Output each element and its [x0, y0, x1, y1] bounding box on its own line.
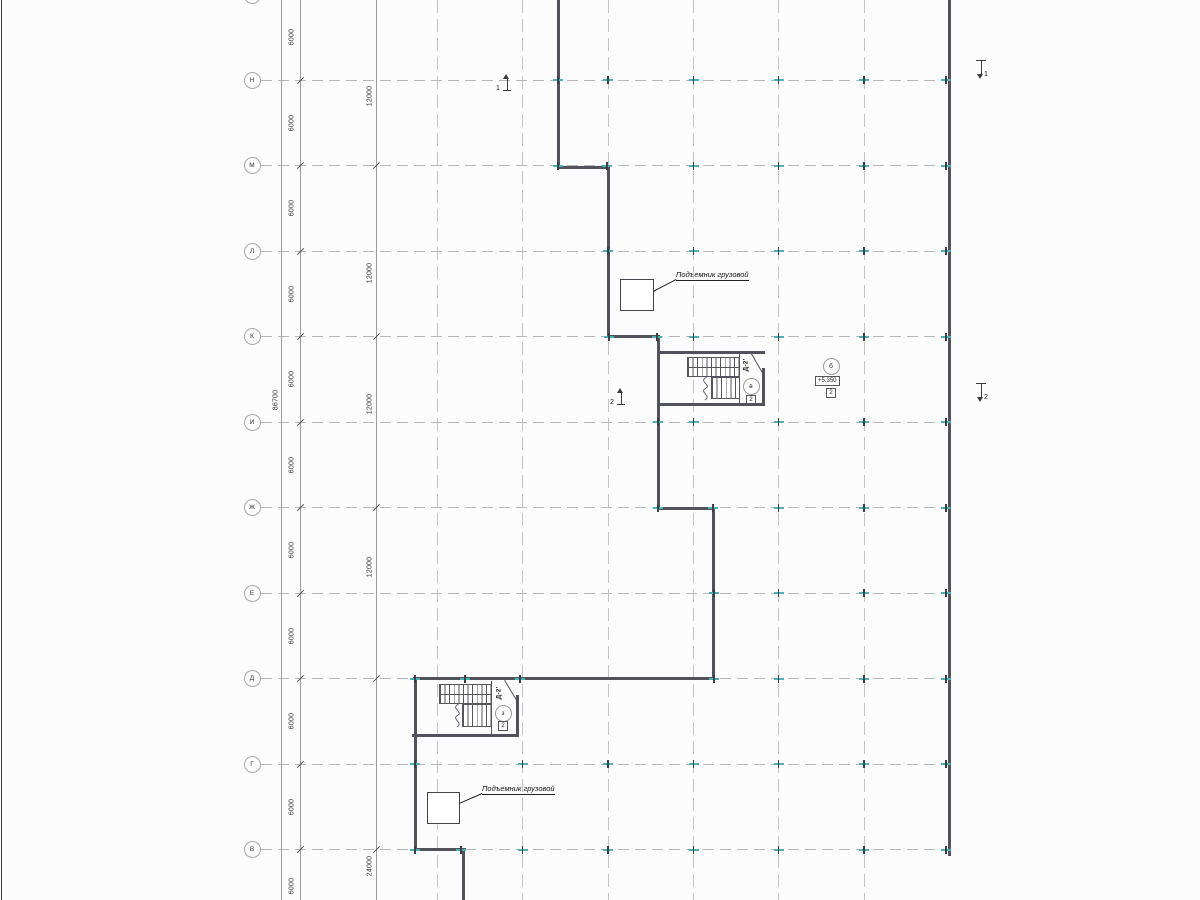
grid-tick: [863, 846, 865, 854]
grid-tick: [464, 675, 466, 683]
dim-label: 6000: [289, 29, 296, 45]
grid-tick: [693, 76, 695, 84]
grid-tick: [414, 846, 416, 854]
grid-tick: [607, 760, 609, 768]
grid-tick: [778, 589, 780, 597]
axis-circle: И: [244, 414, 261, 431]
grid-tick: [414, 675, 416, 683]
dim-label: 6000: [289, 200, 296, 216]
dim-label: 12000: [367, 86, 374, 106]
axis-label: К: [250, 333, 254, 340]
section-mark-part: [981, 384, 982, 397]
grid-tick: [945, 333, 947, 341]
dim-label: 6000: [289, 457, 296, 473]
dim-label: 6000: [289, 713, 296, 729]
grid-tick: [607, 846, 609, 854]
lift-label: Подъемник грузовой: [482, 784, 555, 795]
door-mark-circle: з: [495, 705, 512, 722]
stair-landing-line: [439, 694, 492, 695]
axis-label: Л: [250, 248, 254, 255]
section-arrow-icon: [503, 74, 509, 79]
grid-tick: [863, 589, 865, 597]
grid-tick: [522, 760, 524, 768]
section-number: 2: [610, 399, 614, 406]
grid-tick: [945, 76, 947, 84]
elevation-mark: +5.350: [815, 376, 840, 386]
section-arrow-icon: [977, 74, 983, 79]
grid-tick: [863, 504, 865, 512]
grid-row-line: [261, 593, 948, 594]
axis-circle: В: [244, 841, 261, 858]
grid-tick: [945, 846, 947, 854]
dim-line-overall: [281, 0, 282, 900]
section-mark-part: [617, 404, 625, 405]
grid-tick: [778, 333, 780, 341]
grid-tick: [607, 76, 609, 84]
grid-tick: [607, 247, 609, 255]
stair-landing-line: [687, 367, 740, 368]
dim-label: 6000: [289, 115, 296, 131]
wall-segment: [948, 0, 951, 856]
grid-tick: [519, 675, 521, 683]
section-arrow-icon: [977, 397, 983, 402]
section-mark-part: [976, 60, 986, 61]
grid-tick: [657, 504, 659, 512]
door-leaf-line: [504, 680, 517, 700]
section-mark-part: [503, 90, 511, 91]
sheet-edge-line: [1, 0, 2, 900]
leader-line: [653, 279, 677, 292]
grid-tick: [863, 418, 865, 426]
section-mark-part: [976, 383, 986, 384]
grid-tick: [778, 504, 780, 512]
door-leaf-line: [750, 352, 763, 373]
dim-label: 6000: [289, 286, 296, 302]
section-mark: 2: [611, 388, 631, 416]
floor-mark-box: 2: [498, 721, 508, 731]
wall-segment: [413, 677, 715, 680]
wall-segment: [657, 507, 715, 510]
axis-circle: М: [244, 157, 261, 174]
axis-label: И: [250, 419, 255, 426]
axis-label: М: [249, 162, 254, 169]
floor-mark-box: 2: [826, 388, 836, 398]
grid-tick: [557, 162, 559, 170]
door-mark-circle: в: [743, 378, 760, 395]
grid-tick: [863, 247, 865, 255]
grid-tick: [522, 846, 524, 854]
axis-circle: Д: [244, 670, 261, 687]
lift-label: Подъемник грузовой: [676, 270, 749, 281]
axis-circle: К: [244, 328, 261, 345]
axis-mark-circle: б: [823, 358, 840, 375]
dim-label: 24000: [367, 856, 374, 876]
grid-tick: [778, 162, 780, 170]
wall-segment: [557, 0, 560, 169]
floor-plan-canvas: 86700 Подъемник грузовой Подъемник грузо…: [0, 0, 1200, 900]
grid-tick: [778, 675, 780, 683]
dim-overall-label: 86700: [273, 390, 280, 410]
freight-lift-box: [427, 792, 460, 824]
axis-label: В: [250, 846, 254, 853]
axis-circle: Ж: [244, 499, 261, 516]
stair-flight: [462, 704, 492, 727]
grid-tick: [608, 333, 610, 341]
stair-break-line: [700, 377, 711, 400]
axis-label: Е: [250, 590, 254, 597]
axis-circle: Г: [244, 756, 261, 773]
stairwell-wall: [762, 368, 765, 405]
grid-tick: [693, 846, 695, 854]
section-number: 1: [496, 85, 500, 92]
stair-tag: Д-2': [743, 359, 750, 372]
stairwell-wall: [657, 351, 765, 354]
axis-circle: Н: [244, 72, 261, 89]
grid-tick: [945, 162, 947, 170]
grid-tick: [778, 76, 780, 84]
stairwell-wall: [657, 403, 765, 406]
grid-tick: [778, 418, 780, 426]
grid-tick: [557, 76, 559, 84]
axis-label: Д: [250, 675, 254, 682]
wall-segment: [462, 851, 465, 900]
grid-tick: [712, 504, 714, 512]
grid-tick: [863, 675, 865, 683]
dim-label: 12000: [367, 263, 374, 283]
section-mark-part: [981, 61, 982, 74]
axis-label: Г: [250, 761, 254, 768]
stair-break-line: [452, 704, 463, 727]
grid-tick: [778, 760, 780, 768]
stairwell-wall: [412, 734, 519, 737]
axis-circle: Л: [244, 243, 261, 260]
grid-tick: [945, 589, 947, 597]
grid-tick: [693, 162, 695, 170]
section-mark: 1: [497, 74, 517, 102]
grid-tick: [863, 333, 865, 341]
grid-row-line: [261, 507, 948, 508]
grid-tick: [945, 760, 947, 768]
dim-label: 6000: [289, 799, 296, 815]
grid-tick: [460, 846, 462, 854]
grid-tick: [945, 418, 947, 426]
grid-tick: [863, 760, 865, 768]
axis-circle: Е: [244, 585, 261, 602]
stairwell-wall: [516, 695, 519, 736]
section-mark: 2: [971, 380, 991, 408]
stair-flight: [711, 377, 740, 399]
section-arrow-icon: [617, 388, 623, 393]
dim-label: 12000: [367, 557, 374, 577]
dim-label: 6000: [289, 878, 296, 894]
grid-tick: [863, 162, 865, 170]
leader-line: [459, 793, 482, 804]
axis-label: Ж: [249, 504, 255, 511]
grid-tick: [656, 333, 658, 341]
dim-label: 6000: [289, 371, 296, 387]
grid-tick: [657, 418, 659, 426]
grid-tick: [693, 760, 695, 768]
grid-column-line: [437, 0, 438, 900]
grid-tick: [945, 675, 947, 683]
grid-tick: [693, 333, 695, 341]
grid-tick: [778, 846, 780, 854]
stair-tag: Д-2': [496, 687, 503, 700]
dim-label: 6000: [289, 628, 296, 644]
dim-label: 12000: [367, 394, 374, 414]
grid-tick: [693, 247, 695, 255]
grid-tick: [414, 760, 416, 768]
axis-label: Н: [250, 77, 255, 84]
grid-tick: [863, 76, 865, 84]
grid-tick: [778, 247, 780, 255]
grid-tick: [713, 675, 715, 683]
dim-line-12000: [376, 0, 377, 900]
grid-row-line: [261, 422, 948, 423]
dim-label: 6000: [289, 542, 296, 558]
grid-tick: [606, 162, 608, 170]
grid-tick: [945, 247, 947, 255]
axis-circle-partial: [244, 0, 261, 4]
grid-tick: [693, 418, 695, 426]
grid-tick: [713, 589, 715, 597]
section-number: 2: [984, 394, 988, 401]
freight-lift-box: [620, 279, 654, 311]
section-mark: 1: [971, 57, 991, 85]
section-number: 1: [984, 71, 988, 78]
grid-tick: [945, 504, 947, 512]
